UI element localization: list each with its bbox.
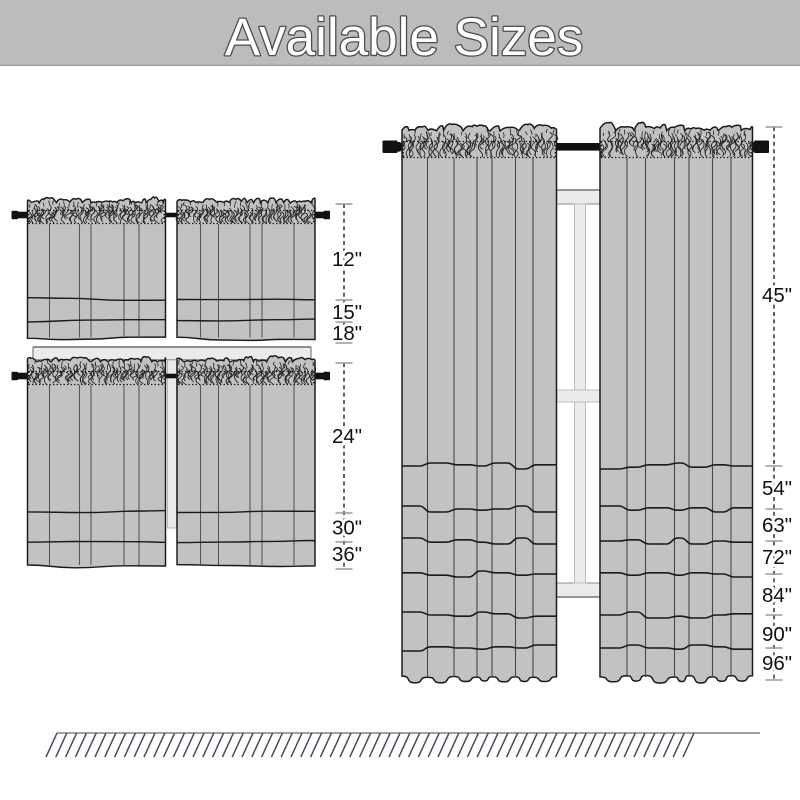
- svg-text:54": 54": [762, 477, 792, 500]
- svg-text:15": 15": [332, 301, 362, 324]
- svg-text:36": 36": [332, 543, 362, 566]
- svg-text:30": 30": [332, 517, 362, 540]
- svg-text:Available Sizes: Available Sizes: [225, 8, 583, 67]
- svg-text:84": 84": [762, 584, 792, 607]
- svg-text:45": 45": [762, 284, 792, 307]
- svg-text:18": 18": [332, 322, 362, 345]
- svg-text:24": 24": [332, 425, 362, 448]
- svg-text:72": 72": [762, 546, 792, 569]
- svg-text:12": 12": [332, 248, 362, 271]
- svg-text:96": 96": [762, 652, 792, 675]
- svg-text:63": 63": [762, 514, 792, 537]
- svg-text:90": 90": [762, 623, 792, 646]
